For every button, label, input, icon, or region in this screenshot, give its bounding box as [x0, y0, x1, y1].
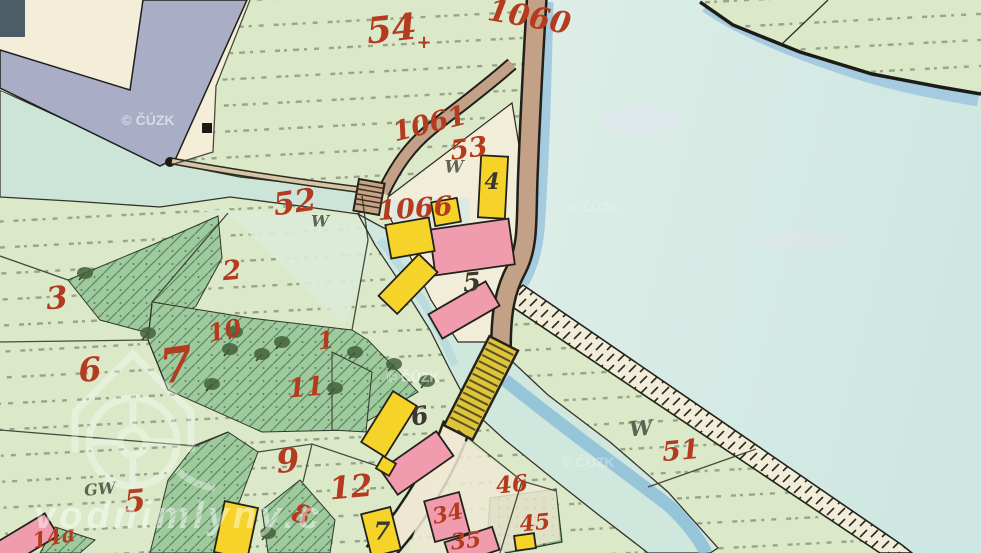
map-label: 35 [449, 526, 482, 553]
cadastral-map-canvas[interactable]: 54+1060106153521066231011176981255146453… [0, 0, 981, 553]
copyright-watermark: © ČÚZK [121, 111, 174, 128]
copyright-watermark: © ČÚZK [561, 453, 614, 470]
copyright-watermark: © ČÚZK [569, 200, 619, 215]
map-label: 7 [374, 517, 391, 546]
map-label: 54 [365, 6, 419, 53]
site-watermark: vodnimlyny.c [34, 495, 323, 537]
map-label: 3 [45, 280, 70, 318]
map-label: 5 [462, 267, 483, 298]
map-label: W [311, 212, 331, 231]
map-label: 9 [275, 440, 301, 481]
map-label: W [444, 158, 465, 178]
map-label: 2 [220, 255, 242, 288]
survey-marker [202, 123, 212, 133]
map-label: 45 [518, 508, 551, 537]
sheet-corner-dark [0, 0, 25, 37]
map-label: 11 [287, 371, 326, 404]
map-label: 12 [328, 468, 374, 508]
pond-sheen [755, 228, 845, 252]
map-label: + [416, 32, 431, 53]
historic-cadastral-map: 54+1060106153521066231011176981255146453… [0, 0, 981, 553]
map-label: 1066 [376, 191, 453, 227]
stone-building [429, 219, 515, 276]
map-label: 4 [484, 169, 499, 195]
pond-sheen [600, 106, 680, 134]
map-label: 46 [495, 469, 530, 499]
map-label: 51 [661, 434, 701, 468]
copyright-watermark: © ČÚZK [386, 368, 439, 385]
